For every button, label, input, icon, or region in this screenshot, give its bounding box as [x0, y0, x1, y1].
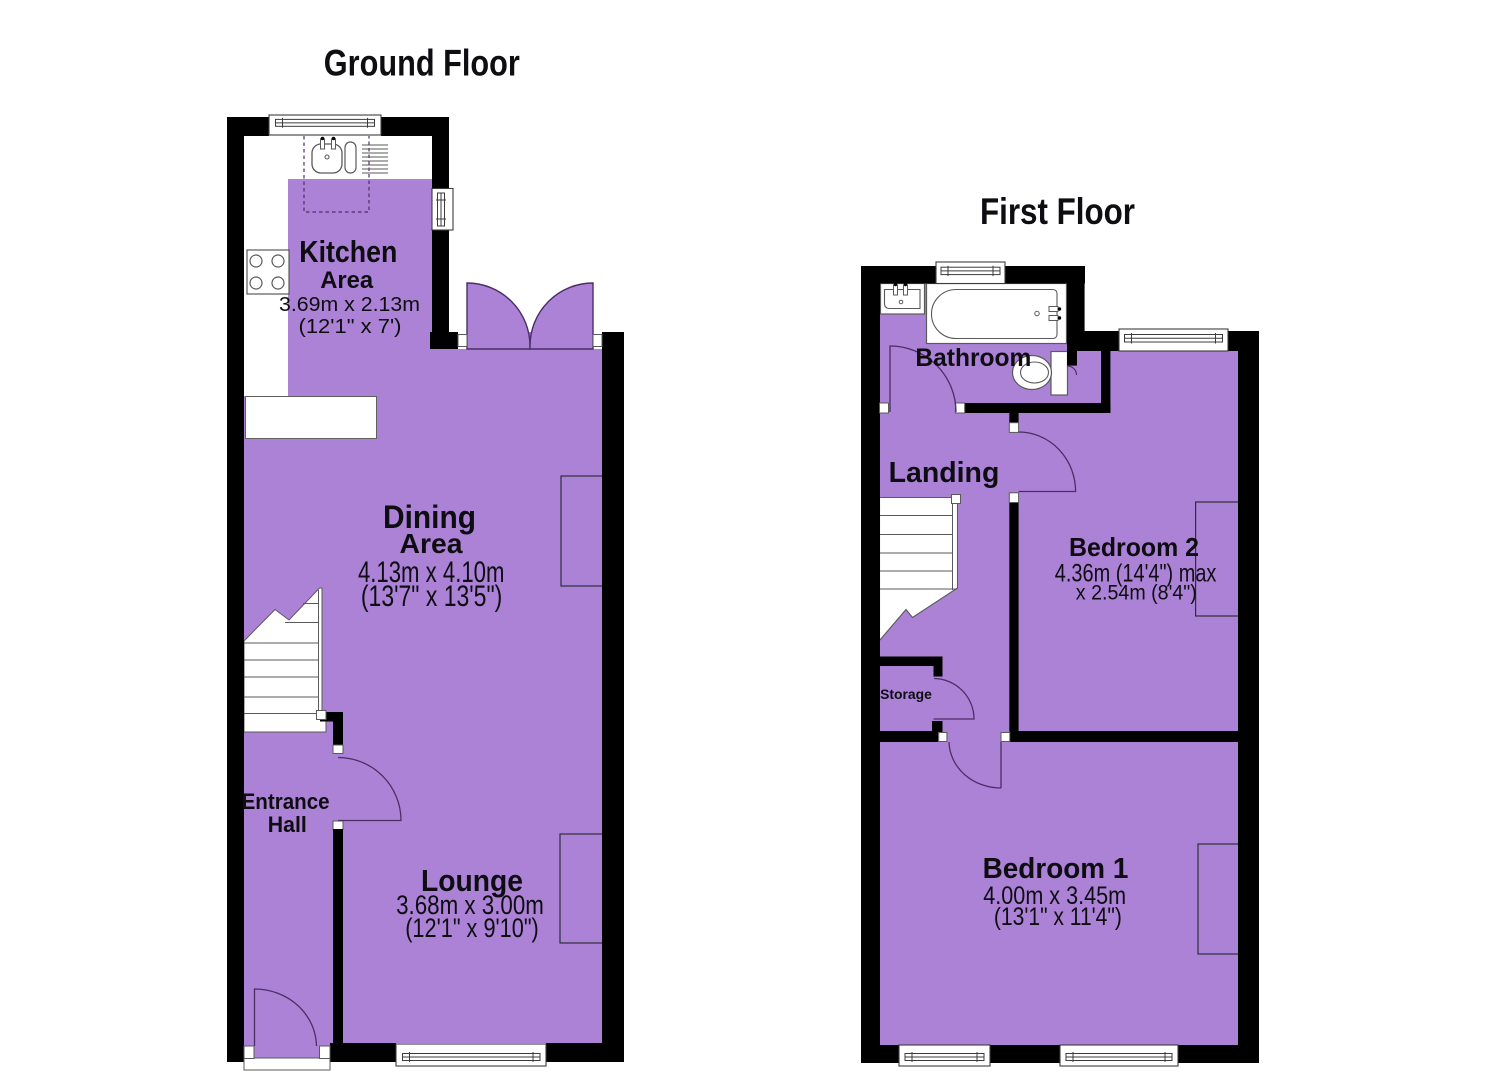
svg-text:Landing: Landing	[889, 457, 1000, 489]
svg-text:x 2.54m (8'4"): x 2.54m (8'4")	[1076, 582, 1197, 605]
svg-text:(12'1" x 7'): (12'1" x 7')	[299, 316, 402, 338]
svg-text:Area: Area	[400, 528, 463, 559]
svg-text:Hall: Hall	[268, 812, 307, 837]
svg-text:Bedroom 2: Bedroom 2	[1069, 532, 1199, 562]
svg-text:First Floor: First Floor	[980, 191, 1135, 232]
svg-text:Entrance: Entrance	[242, 789, 330, 814]
svg-text:3.69m x 2.13m: 3.69m x 2.13m	[279, 294, 420, 316]
svg-text:(13'7" x 13'5"): (13'7" x 13'5")	[361, 580, 502, 613]
svg-text:(12'1" x 9'10"): (12'1" x 9'10")	[405, 913, 539, 943]
svg-text:(13'1" x 11'4"): (13'1" x 11'4")	[994, 903, 1122, 931]
svg-text:Ground Floor: Ground Floor	[324, 43, 520, 84]
svg-text:Area: Area	[320, 267, 374, 294]
svg-text:Storage: Storage	[880, 686, 932, 702]
svg-text:Bathroom: Bathroom	[915, 344, 1031, 372]
svg-text:Kitchen: Kitchen	[299, 234, 397, 269]
svg-text:Bedroom 1: Bedroom 1	[983, 853, 1129, 885]
